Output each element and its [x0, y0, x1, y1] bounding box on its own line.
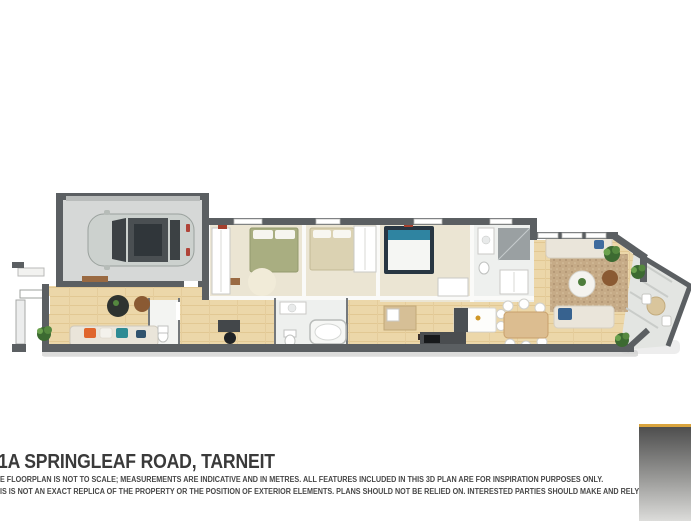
coffee-table-dark [107, 295, 129, 317]
bed-olive [250, 228, 298, 272]
wc-door [176, 302, 180, 320]
car-sunroof [134, 224, 162, 256]
branding-corner-gradient [639, 424, 691, 521]
island-appliance [454, 308, 468, 332]
lounge-sofa [70, 326, 158, 346]
bedroom-3-drawers [438, 278, 468, 296]
floorplan-3d-render [0, 0, 691, 518]
disclaimer-line-1: E FLOORPLAN IS NOT TO SCALE; MEASUREMENT… [0, 475, 603, 484]
washing-machine [387, 309, 399, 321]
desk [218, 320, 240, 332]
ensuite-toilet [479, 262, 489, 274]
floorplan-page: 1A SPRINGLEAF ROAD, TARNEIT E FLOORPLAN … [0, 0, 691, 518]
window [538, 233, 558, 238]
bed-teal [384, 226, 434, 274]
window [234, 219, 262, 224]
cooktop [424, 335, 440, 343]
dining-chair [519, 299, 529, 309]
dining [503, 299, 548, 351]
window [562, 233, 582, 238]
property-address-title: 1A SPRINGLEAF ROAD, TARNEIT [0, 451, 275, 474]
office-chair [224, 332, 236, 344]
car [88, 210, 194, 270]
round-rug [248, 268, 276, 296]
garage-roller-door [66, 196, 200, 201]
fruit-bowl [476, 316, 481, 321]
window [316, 219, 340, 224]
car-taillight [186, 224, 190, 232]
dining-chair [503, 301, 513, 311]
sofa-bottom [554, 306, 614, 328]
ottoman [602, 270, 618, 286]
outdoor-chair [642, 294, 651, 304]
side-table [134, 296, 150, 312]
window [490, 219, 512, 224]
disclaimer-line-2: IS IS NOT AN EXACT REPLICA OF THE PROPER… [0, 487, 691, 496]
doormat [82, 276, 108, 282]
window [414, 219, 442, 224]
dining-table [504, 312, 548, 338]
outdoor-chair [662, 316, 671, 326]
bedroom-2 [310, 226, 376, 272]
garage-internal-door [184, 281, 198, 287]
window [586, 233, 606, 238]
sofa-top [546, 236, 612, 258]
bed-cream [310, 228, 354, 270]
